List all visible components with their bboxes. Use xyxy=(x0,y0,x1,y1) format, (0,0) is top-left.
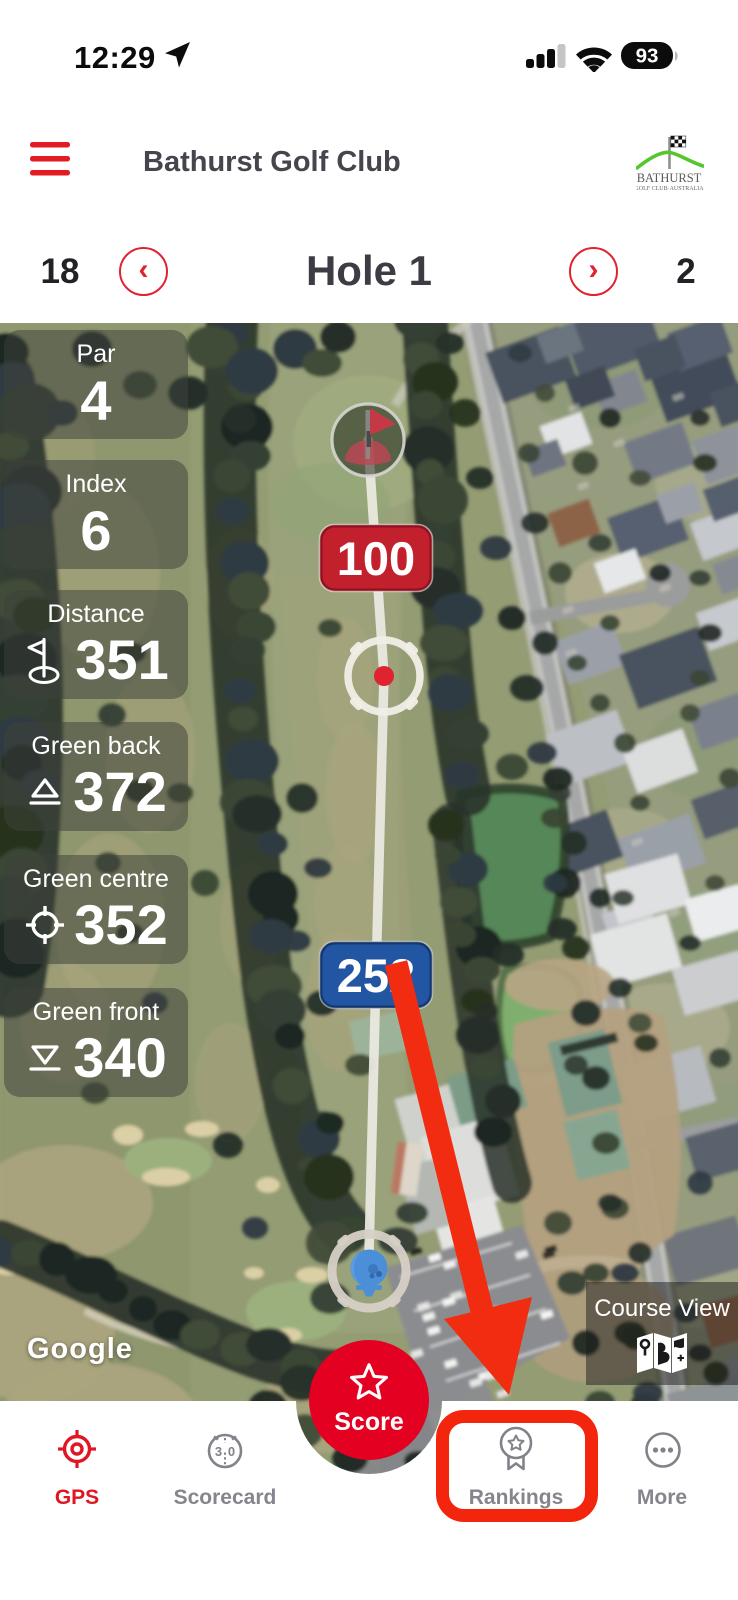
svg-text:BATHURST: BATHURST xyxy=(637,171,702,185)
svg-text:100: 100 xyxy=(337,532,415,585)
svg-text:3: 3 xyxy=(215,1444,222,1459)
svg-text:93: 93 xyxy=(636,45,659,68)
svg-text:GOLF CLUB·AUSTRALIA: GOLF CLUB·AUSTRALIA xyxy=(636,186,704,192)
svg-text:0: 0 xyxy=(228,1444,235,1459)
